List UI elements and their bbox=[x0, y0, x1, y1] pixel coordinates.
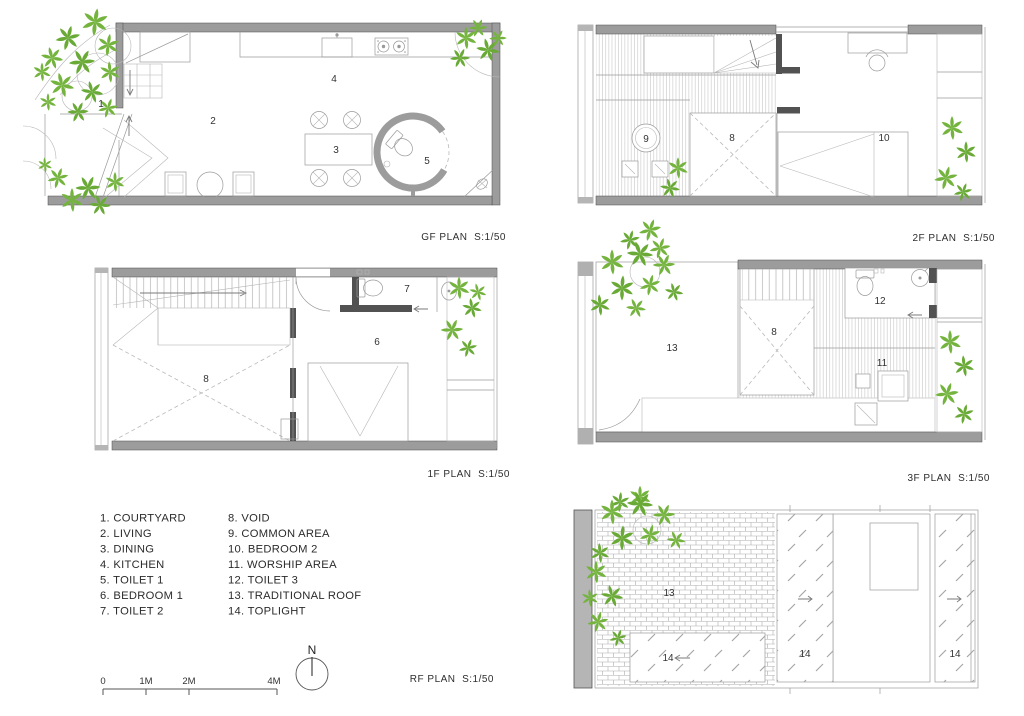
1f-balcony-rail bbox=[95, 268, 108, 450]
plan-title-gf: GF PLAN S:1/50 bbox=[421, 232, 506, 243]
gf-corner-sink bbox=[464, 168, 495, 197]
room-label: 7 bbox=[404, 284, 410, 295]
altar-table bbox=[878, 371, 908, 401]
2f-balcony-rail bbox=[578, 25, 593, 203]
scale-bar: 0 1M 2M 4M bbox=[100, 676, 280, 695]
room-label: 13 bbox=[666, 343, 678, 354]
gf-toilet1 bbox=[377, 116, 449, 196]
room-label: 1 bbox=[98, 99, 104, 110]
legend-item: 5. TOILET 1 bbox=[100, 575, 164, 587]
legend: 1. COURTYARD 2. LIVING 3. DINING 4. KITC… bbox=[100, 513, 361, 618]
plan-title-2f: 2F PLAN S:1/50 bbox=[912, 233, 995, 244]
2f-right-strip bbox=[937, 34, 982, 196]
legend-item: 2. LIVING bbox=[100, 528, 152, 540]
room-label: 3 bbox=[333, 145, 339, 156]
scale-tick-label: 2M bbox=[182, 676, 195, 687]
legend-item: 11. WORSHIP AREA bbox=[228, 559, 337, 571]
rf-plan: 13 14 14 14 RF PLAN S:1/50 bbox=[410, 486, 978, 694]
gf-sofa-set bbox=[165, 172, 254, 198]
legend-item: 14. TOPLIGHT bbox=[228, 606, 306, 618]
legend-item: 12. TOILET 3 bbox=[228, 575, 298, 587]
stair-down-arrow-icon bbox=[127, 70, 133, 95]
legend-item: 1. COURTYARD bbox=[100, 513, 186, 525]
room-label: 4 bbox=[331, 74, 337, 85]
3f-plan: 13 8 12 11 3F PLAN S:1/50 bbox=[578, 216, 990, 484]
toilet-icon bbox=[357, 279, 383, 297]
legend-item: 3. DINING bbox=[100, 544, 154, 556]
desk-chair bbox=[869, 55, 885, 71]
gf-plan: 1 2 3 4 5 GF PLAN S:1/50 bbox=[23, 6, 507, 243]
kitchen-sink-icon bbox=[322, 38, 352, 57]
room-label: 10 bbox=[878, 133, 890, 144]
north-compass: N bbox=[296, 643, 328, 690]
legend-item: 6. BEDROOM 1 bbox=[100, 590, 183, 602]
gf-plants bbox=[33, 6, 507, 220]
roof-hatch bbox=[870, 523, 918, 590]
3f-right-strip bbox=[937, 264, 985, 440]
legend-item: 7. TOILET 2 bbox=[100, 606, 164, 618]
rf-middle-section bbox=[777, 505, 930, 694]
legend-item: 4. KITCHEN bbox=[100, 559, 165, 571]
1f-stairs bbox=[113, 277, 290, 345]
room-label: 6 bbox=[374, 337, 380, 348]
room-label: 14 bbox=[949, 649, 961, 660]
room-label: 13 bbox=[663, 588, 675, 599]
room-label: 2 bbox=[210, 116, 216, 127]
room-label: 14 bbox=[799, 649, 811, 660]
plan-title-3f: 3F PLAN S:1/50 bbox=[907, 473, 990, 484]
2f-plan: 9 8 10 2F PLAN S:1/50 bbox=[578, 25, 995, 244]
room-label: 11 bbox=[877, 358, 888, 369]
2f-bedroom2 bbox=[778, 33, 908, 197]
3f-balcony-rail bbox=[578, 262, 593, 444]
plan-title-1f: 1F PLAN S:1/50 bbox=[427, 469, 510, 480]
rf-toplight-1 bbox=[630, 633, 765, 682]
room-label: 9 bbox=[643, 134, 649, 145]
scale-tick-label: 4M bbox=[267, 676, 280, 687]
legend-item: 9. COMMON AREA bbox=[228, 528, 330, 540]
legend-item: 10. BEDROOM 2 bbox=[228, 544, 318, 556]
legend-item: 8. VOID bbox=[228, 513, 270, 525]
3f-toilet3 bbox=[845, 266, 937, 318]
room-label: 12 bbox=[874, 296, 886, 307]
plan-title-rf: RF PLAN S:1/50 bbox=[410, 674, 494, 685]
stove-icon bbox=[375, 38, 408, 55]
gf-stairs bbox=[124, 32, 190, 98]
north-label: N bbox=[308, 643, 317, 657]
door-arrow-icon bbox=[414, 306, 428, 312]
room-label: 5 bbox=[424, 156, 430, 167]
room-label: 8 bbox=[771, 327, 777, 338]
1f-bedroom1 bbox=[281, 363, 408, 441]
scale-tick-label: 1M bbox=[139, 676, 152, 687]
room-label: 8 bbox=[203, 374, 209, 385]
coffee-table bbox=[197, 172, 223, 198]
scale-tick-label: 0 bbox=[100, 676, 105, 687]
toilet-icon bbox=[385, 130, 416, 160]
1f-plan: 8 7 6 1F PLAN S:1/50 bbox=[95, 268, 510, 480]
room-label: 14 bbox=[662, 653, 674, 664]
drawing-canvas: 1 2 3 4 5 GF PLAN S:1/50 bbox=[0, 0, 1024, 716]
1f-void bbox=[113, 345, 290, 441]
room-label: 8 bbox=[729, 133, 735, 144]
3f-void bbox=[740, 269, 814, 395]
floor-plan-sheet: 1 2 3 4 5 GF PLAN S:1/50 bbox=[0, 0, 1024, 716]
legend-item: 13. TRADITIONAL ROOF bbox=[228, 590, 361, 602]
